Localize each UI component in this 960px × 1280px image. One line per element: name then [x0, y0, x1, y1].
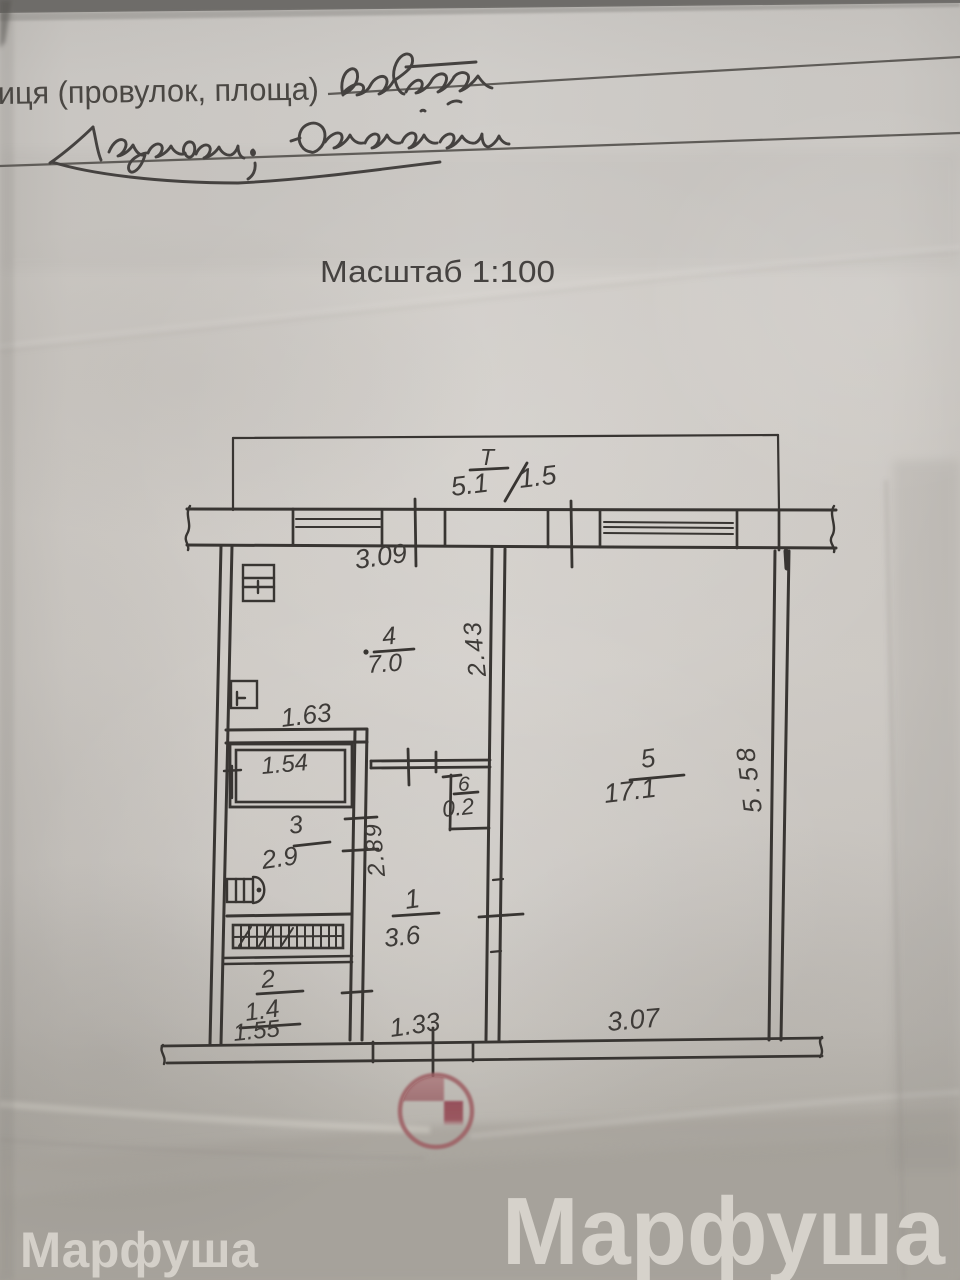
svg-text:4: 4: [381, 622, 398, 651]
svg-text:5.1: 5.1: [449, 468, 490, 502]
svg-text:2.89: 2.89: [359, 821, 391, 879]
svg-text:2: 2: [259, 965, 277, 994]
svg-text:0.2: 0.2: [441, 793, 476, 822]
svg-text:1.54: 1.54: [260, 749, 309, 780]
svg-text:7.0: 7.0: [366, 649, 403, 679]
svg-text:Масштаб 1:100: Масштаб 1:100: [320, 254, 555, 289]
svg-text:17.1: 17.1: [602, 773, 658, 809]
svg-text:2.9: 2.9: [259, 840, 300, 875]
svg-text:Т: Т: [480, 444, 496, 470]
svg-text:2.43: 2.43: [458, 619, 492, 679]
svg-text:1.55: 1.55: [232, 1015, 282, 1047]
svg-text:1.5: 1.5: [517, 459, 559, 493]
svg-text:Марфуша: Марфуша: [20, 1222, 259, 1278]
svg-text:Марфуша: Марфуша: [502, 1178, 946, 1280]
svg-text:3.07: 3.07: [606, 1002, 662, 1037]
svg-text:иця (провулок, площа): иця (провулок, площа): [0, 71, 319, 111]
svg-text:3.6: 3.6: [382, 919, 422, 953]
svg-text:1.63: 1.63: [279, 697, 333, 733]
